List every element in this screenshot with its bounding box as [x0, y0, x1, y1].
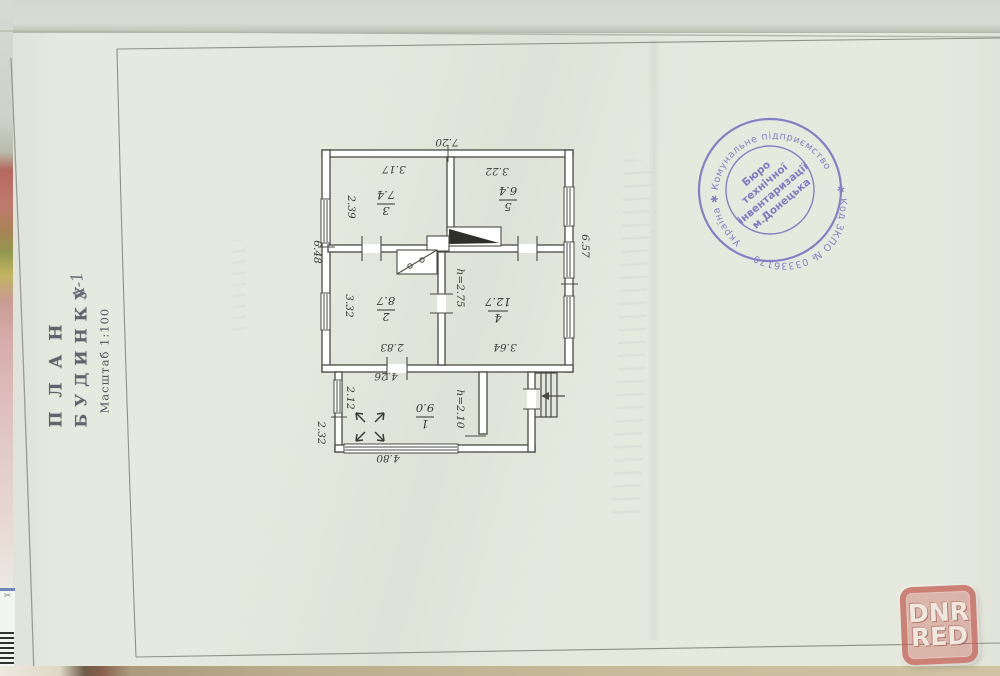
dim-room1-height: h=2.10: [454, 390, 466, 429]
svg-text:4: 4: [494, 311, 502, 325]
dim-room5-width: 3.22: [485, 165, 509, 177]
document-frame: [117, 38, 1000, 657]
dim-room4-height: h=2.75: [454, 269, 466, 308]
doors: [362, 236, 540, 436]
watermark-line2: RED: [910, 624, 968, 650]
svg-text:6.4: 6.4: [499, 184, 517, 198]
room-label-4: 4 12.7: [485, 295, 511, 325]
dim-room3-depth: 2.39: [345, 194, 357, 219]
veranda-arrows: [356, 413, 384, 441]
svg-text:5: 5: [504, 200, 511, 214]
room-label-3: 3 7.4: [377, 188, 395, 218]
porch: [535, 373, 565, 417]
dim-room1-depth: 2.12: [344, 385, 356, 410]
dim-overall-width: 7.20: [435, 136, 459, 148]
title-block: ПЛАН БУДИНКУ Масштаб 1:100 А-1: [31, 236, 156, 486]
dim-annex-width: 4.80: [376, 452, 401, 464]
svg-text:7.4: 7.4: [377, 188, 395, 202]
svg-text:1: 1: [421, 417, 428, 431]
svg-text:3: 3: [382, 204, 389, 218]
photo-bottom-band: [0, 666, 1000, 676]
svg-text:8.7: 8.7: [376, 294, 395, 308]
room-label-5: 5 6.4: [499, 184, 517, 214]
room-label-1: 1 9.0: [416, 401, 434, 431]
dim-left-side: 6.48: [311, 240, 323, 264]
handwritten-litera: А-1: [67, 271, 90, 301]
scale-note: Масштаб 1:100: [91, 236, 112, 486]
page-title-line1: ПЛАН: [31, 236, 67, 486]
room-label-2: 2 8.7: [376, 294, 395, 324]
bti-stamp: Україна ✱ Комунальне підприємство ✱ Код …: [670, 90, 880, 302]
dim-room2-width: 2.83: [380, 341, 405, 353]
dim-room1-width: 4.26: [374, 370, 399, 382]
floor-plan: 7.20 3.17 3.22 2.83 3.64 4.26 4.80 2.39 …: [311, 136, 591, 464]
svg-text:12.7: 12.7: [485, 295, 511, 309]
dim-room3-width: 3.17: [382, 163, 406, 175]
svg-text:2: 2: [382, 310, 390, 324]
dim-room4-width: 3.64: [493, 341, 516, 353]
edge-sticker: ✂: [0, 588, 15, 633]
dim-right-side: 6.57: [579, 234, 591, 258]
svg-text:9.0: 9.0: [416, 401, 434, 415]
scissors-icon: ✂: [4, 591, 11, 600]
dim-room2-depth: 3.32: [343, 294, 355, 318]
dim-annex-side: 2.32: [315, 420, 327, 445]
dnr-red-watermark: DNR RED: [899, 584, 978, 665]
